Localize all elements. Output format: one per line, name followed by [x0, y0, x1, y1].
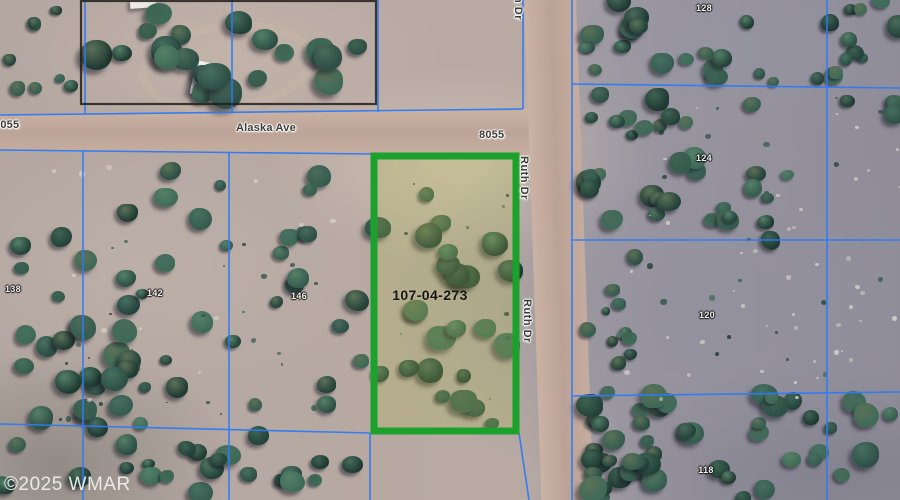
copyright-watermark: ©2025 WMAR — [4, 474, 131, 496]
satellite-map-viewport[interactable]: 8055Alaska Ave8055h DrRuth DrRuth Dr1281… — [0, 0, 900, 500]
parcel-label-146: 146 — [291, 291, 307, 301]
street-label-ruth-dr-top: h Dr — [512, 0, 524, 20]
parcel-boundaries-overlay — [0, 0, 900, 500]
fence-line — [81, 1, 376, 104]
parcel-label-138: 138 — [5, 284, 21, 294]
parcel-label-120: 120 — [699, 310, 715, 320]
street-label-8055-left: 8055 — [0, 119, 19, 131]
street-label-ruth-dr-2: Ruth Dr — [521, 299, 533, 343]
parcel-label-124: 124 — [696, 153, 712, 163]
apn-label: 107-04-273 — [392, 287, 468, 303]
street-label-alaska-ave: Alaska Ave — [236, 122, 296, 134]
parcel-label-118: 118 — [698, 465, 713, 475]
street-label-8055-mid: 8055 — [479, 129, 504, 141]
parcel-label-128: 128 — [696, 3, 712, 13]
parcel-label-142: 142 — [147, 288, 163, 298]
street-label-ruth-dr-1: Ruth Dr — [518, 156, 530, 200]
